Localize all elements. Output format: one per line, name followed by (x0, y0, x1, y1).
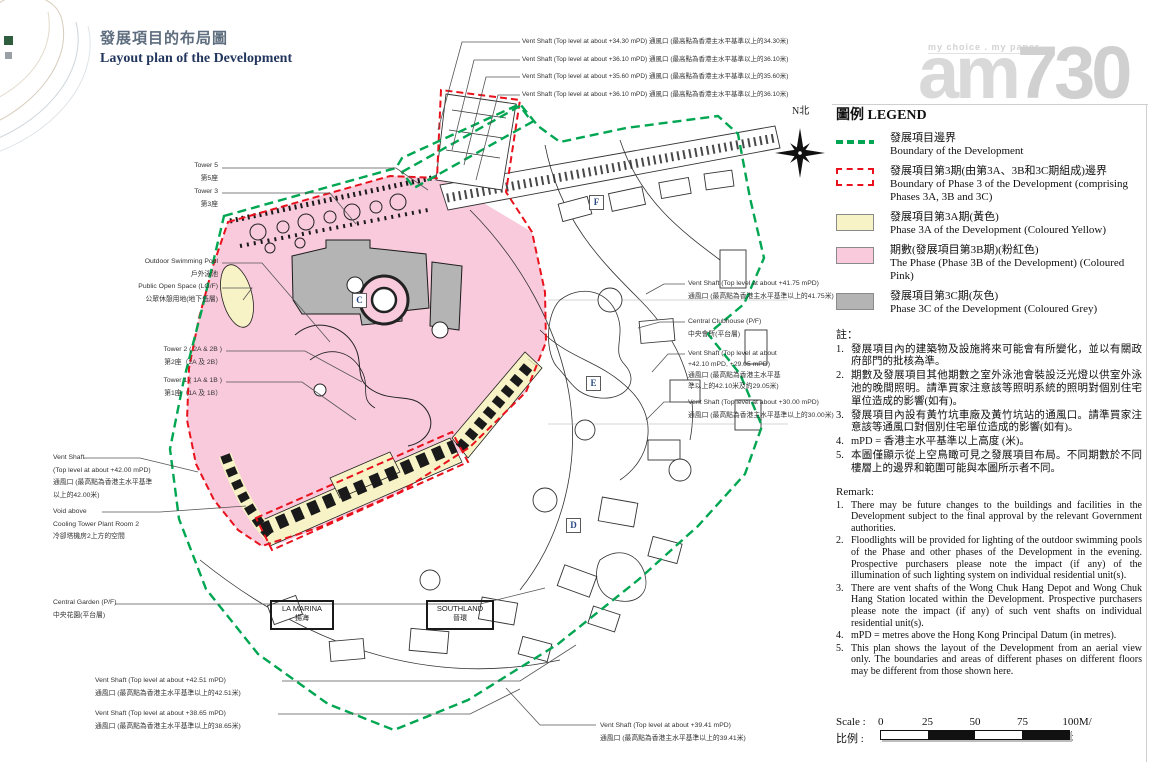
label-vent-shaft-3941: Vent Shaft (Top level at about +39.41 mP… (600, 720, 746, 745)
marker-e: E (586, 376, 601, 391)
marker-c: C (352, 293, 367, 308)
label-tower-1: Tower 1 ( 1A & 1B )第1座（1A 及 1B） (40, 375, 222, 400)
label-vent-shaft-4210: Vent Shaft (Top level at about+42.10 mPD… (688, 348, 781, 392)
label-vent-shaft-42: Vent Shaft(Top level at about +42.00 mPD… (53, 452, 152, 502)
label-central-clubhouse: Central Clubhouse (P/F)中央會所(平台層) (688, 316, 761, 341)
layout-plan-page: 發展項目的布局圖 Layout plan of the Development … (0, 0, 1152, 765)
site-label-southland: SOUTHLAND 晉環 (426, 600, 494, 630)
vent-shaft-callout: Vent Shaft (Top level at about +36.10 mP… (522, 55, 788, 65)
label-public-open-space: Public Open Space (LG/F)公眾休憩用地(地下低層) (40, 281, 218, 306)
marker-d: D (566, 518, 581, 533)
swirl-decoration (0, 0, 90, 152)
label-vent-shaft-3865: Vent Shaft (Top level at about +38.65 mP… (95, 708, 241, 733)
label-vent-shaft-3000: Vent Shaft (Top level at about +30.00 mP… (688, 397, 834, 422)
label-tower-3: Tower 3第3座 (40, 186, 218, 211)
label-tower-2: Tower 2 ( 2A & 2B )第2座（2A 及 2B） (40, 344, 222, 369)
marker-f: F (589, 195, 604, 210)
label-vent-shaft-4175: Vent Shaft (Top level at about +41.75 mP… (688, 278, 834, 303)
label-central-garden: Central Garden (P/F)中央花園(平台層) (53, 597, 116, 622)
label-outdoor-pool: Outdoor Swimming Pool戶外泳池 (40, 256, 218, 281)
compass-north-label: N北 (792, 106, 809, 117)
vent-shaft-callout: Vent Shaft (Top level at about +34.30 mP… (522, 37, 788, 47)
label-tower-5: Tower 5第5座 (40, 160, 218, 185)
vent-shaft-callout: Vent Shaft (Top level at about +35.60 mP… (522, 72, 788, 82)
site-label-la-marina: LA MARINA 揚海 (270, 600, 334, 630)
vent-shaft-callout: Vent Shaft (Top level at about +36.10 mP… (522, 90, 788, 100)
label-void-above-cooling-tower: Void aboveCooling Tower Plant Room 2 冷卻塔… (53, 506, 139, 544)
compass-star-icon (775, 128, 825, 178)
label-vent-shaft-4251: Vent Shaft (Top level at about +42.51 mP… (95, 675, 241, 700)
